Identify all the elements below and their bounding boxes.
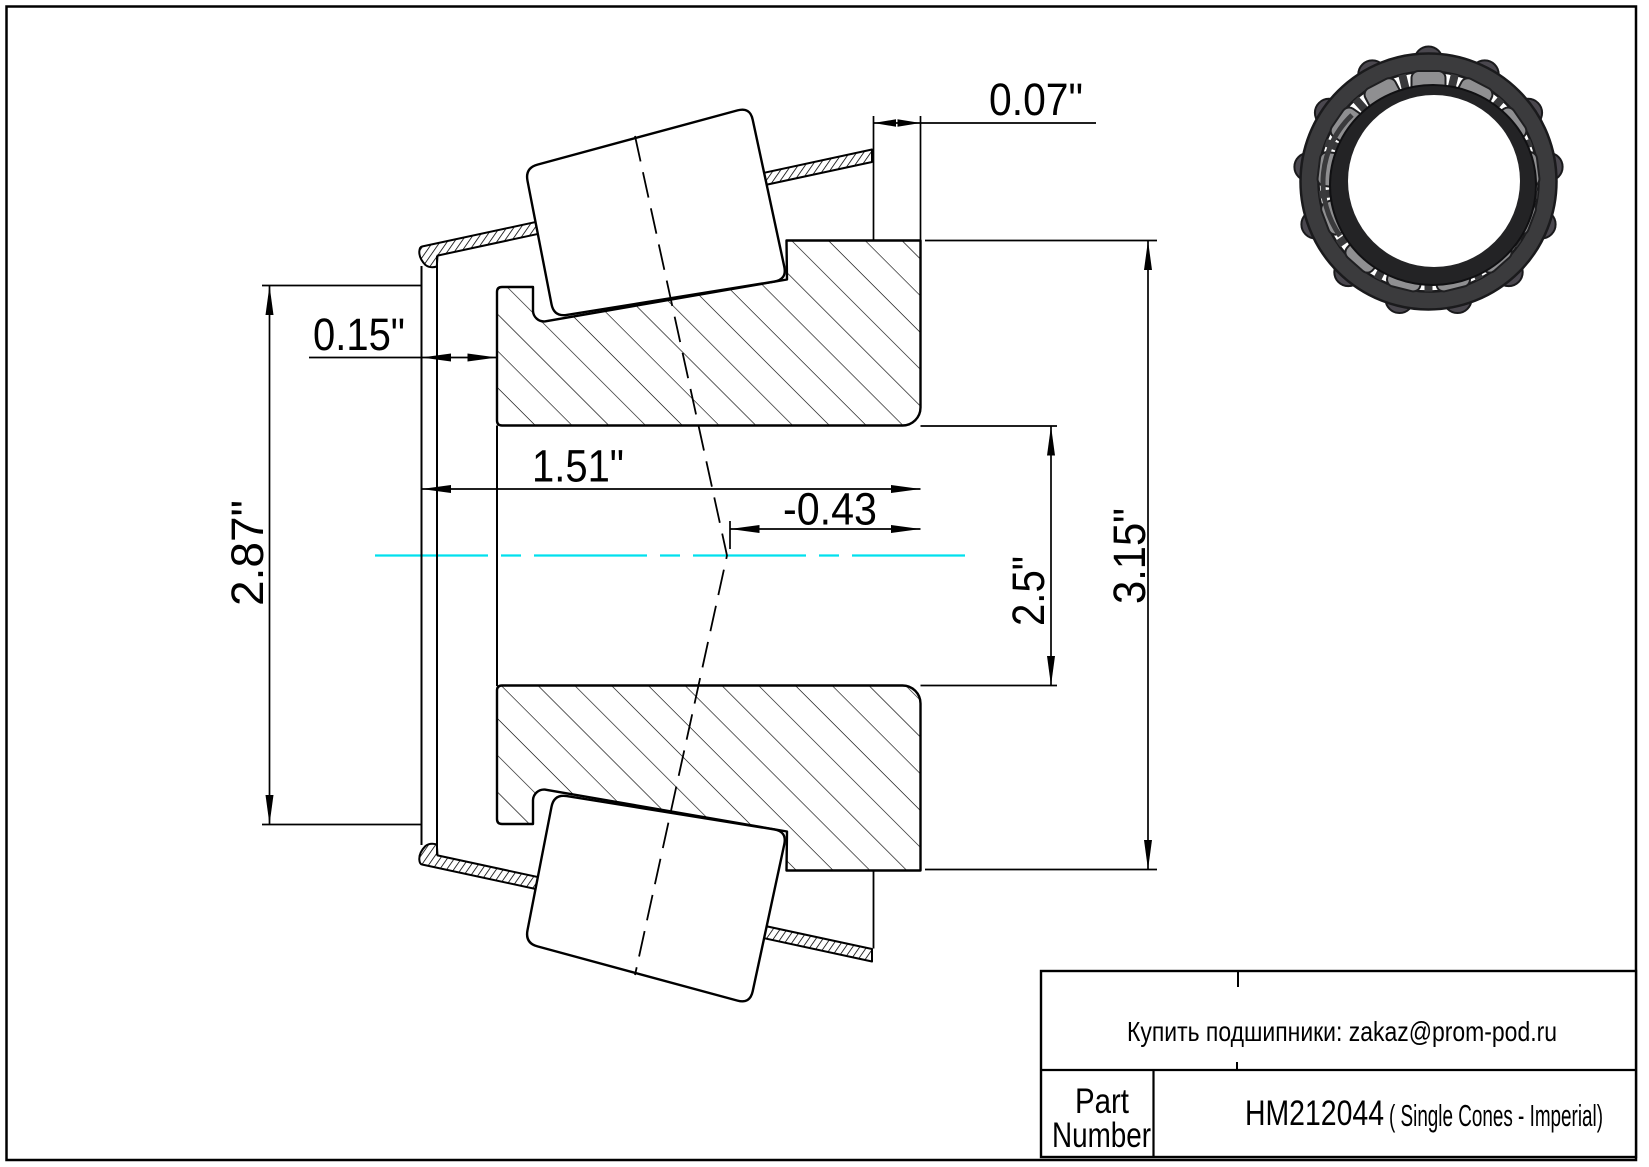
svg-text:2.87": 2.87" (222, 500, 273, 606)
svg-text:-0.43: -0.43 (783, 484, 877, 535)
svg-text:0.15": 0.15" (313, 309, 405, 360)
svg-text:HM212044: HM212044 (1245, 1093, 1384, 1133)
svg-text:( Single Cones - Imperial): ( Single Cones - Imperial) (1389, 1098, 1603, 1133)
svg-text:2.5": 2.5" (1003, 556, 1054, 626)
svg-text:1.51": 1.51" (532, 441, 624, 492)
svg-text:Купить подшипники: zakaz@prom-: Купить подшипники: zakaz@prom-pod.ru (1127, 1016, 1557, 1047)
svg-text:Number: Number (1052, 1116, 1151, 1155)
svg-text:3.15": 3.15" (1104, 508, 1155, 604)
svg-text:0.07": 0.07" (989, 74, 1083, 125)
